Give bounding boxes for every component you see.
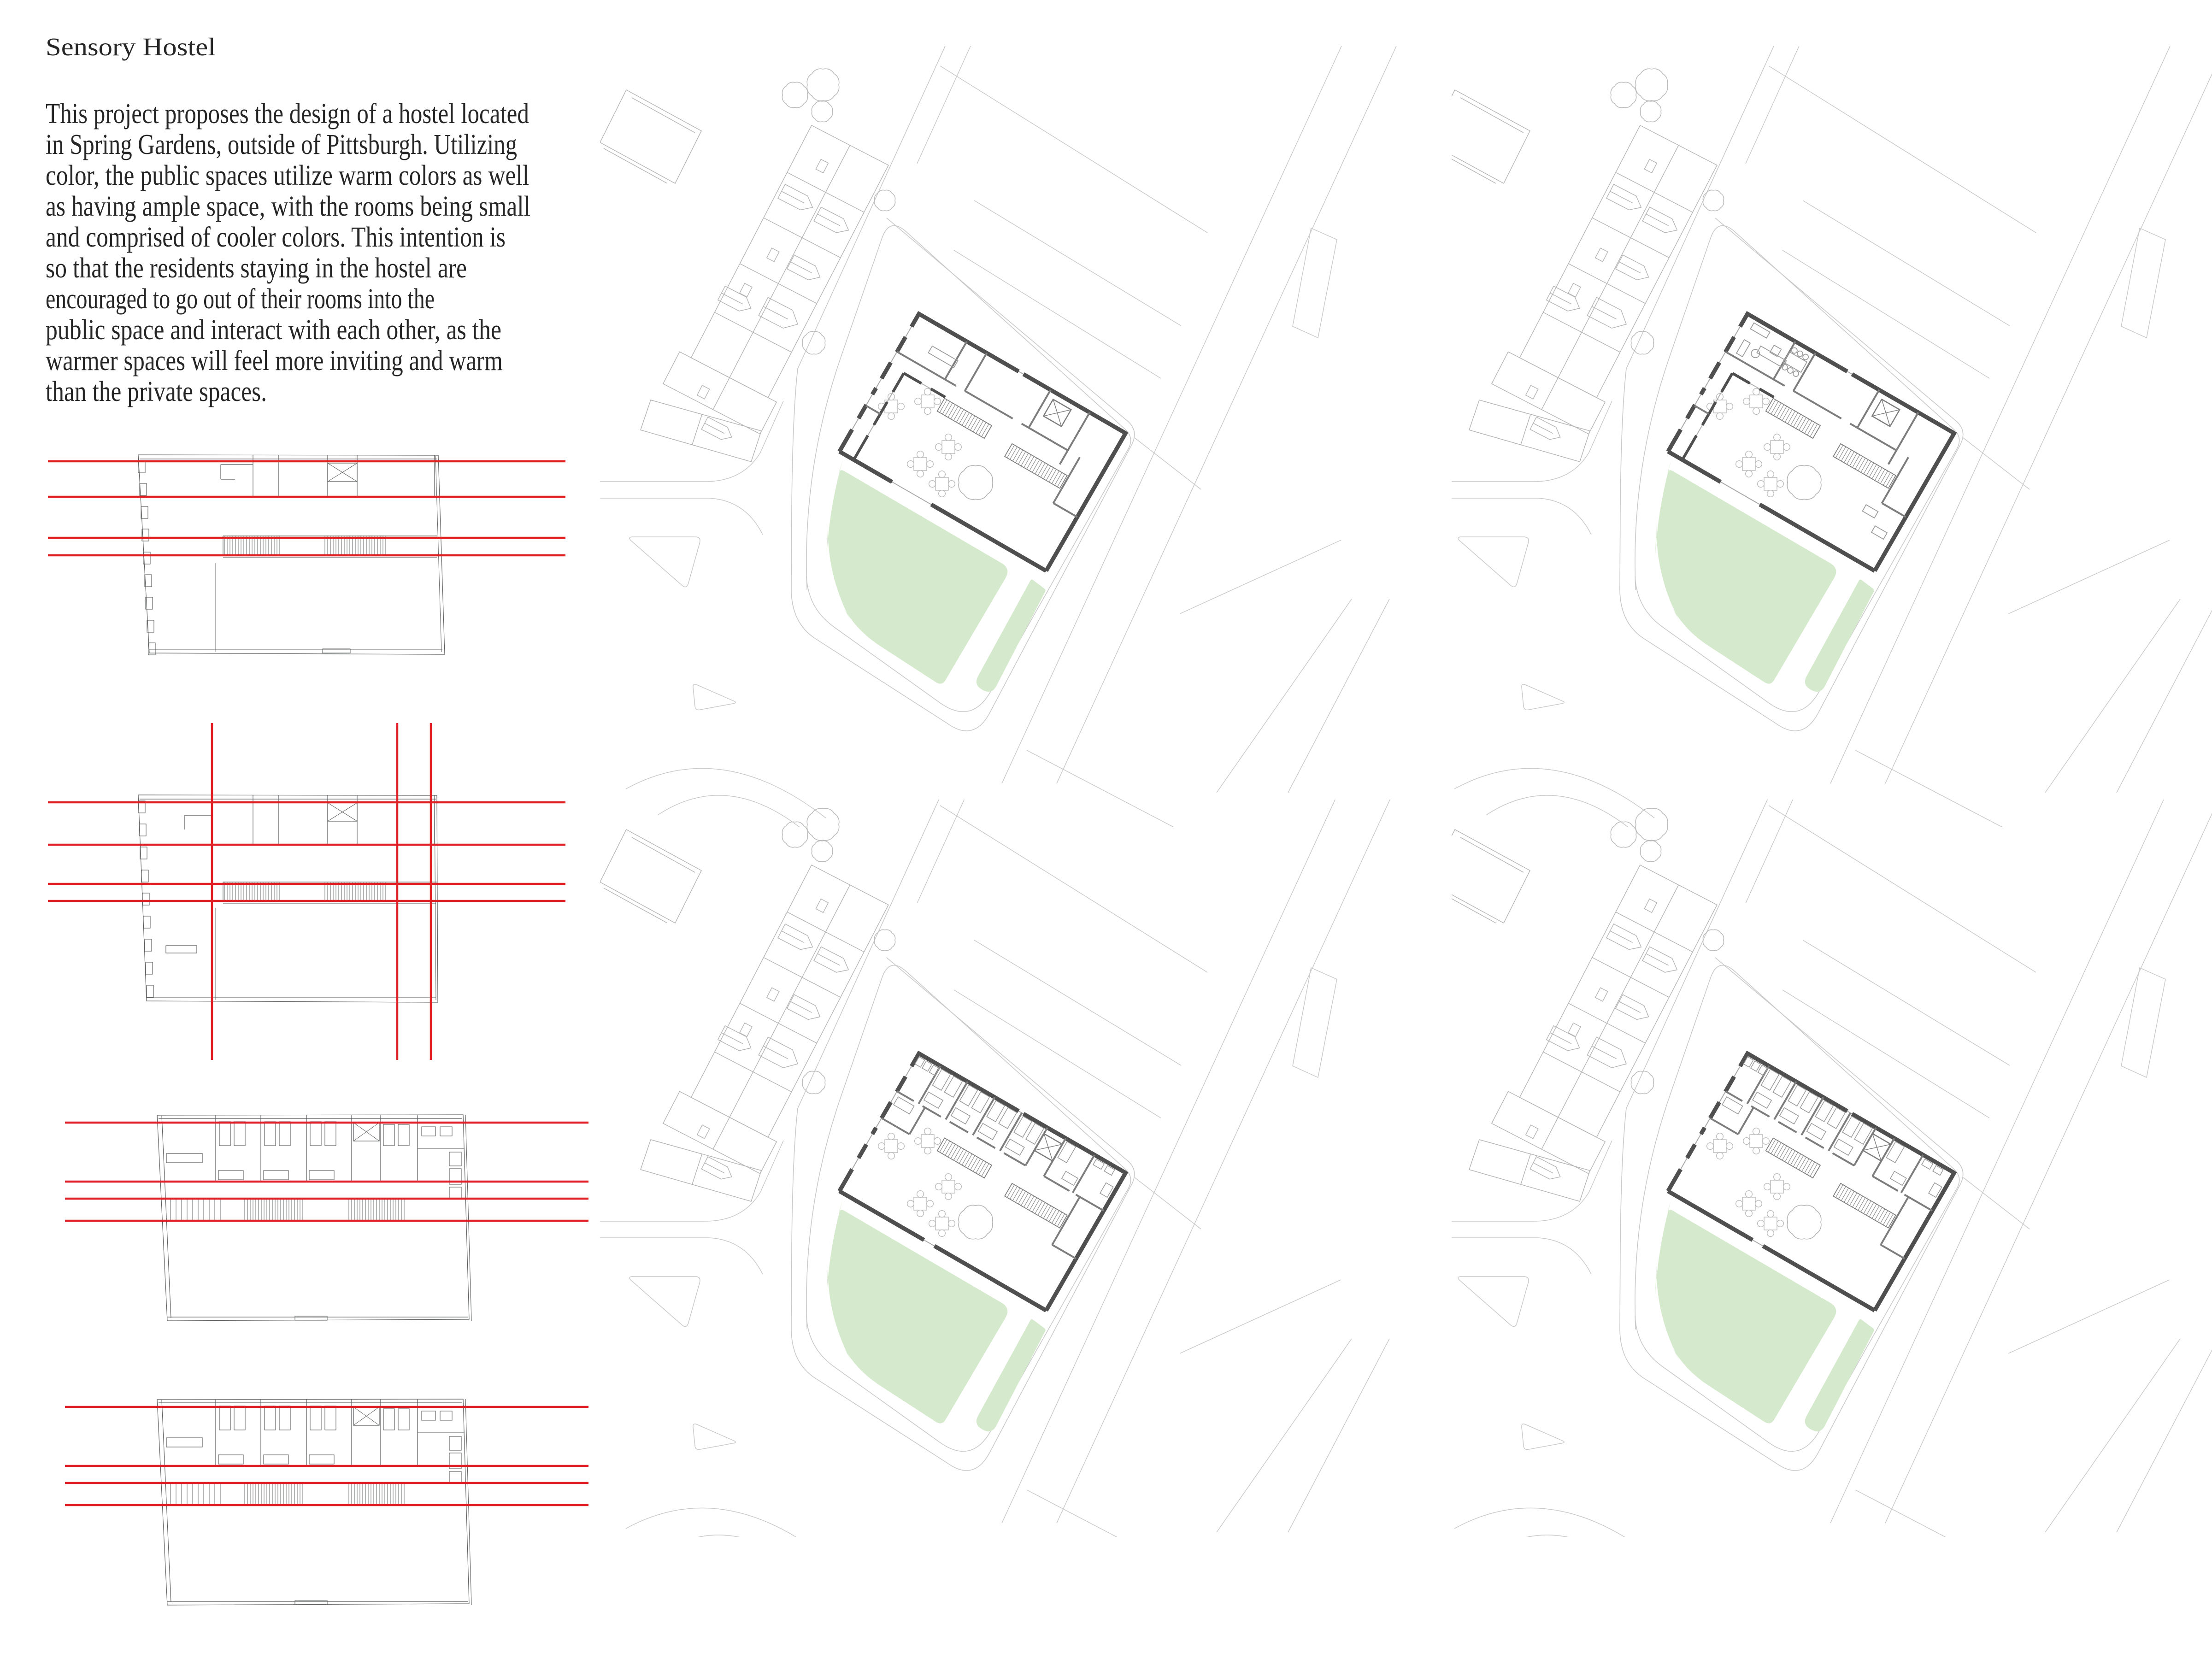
svg-text:than the private spaces.: than the private spaces.	[46, 376, 267, 407]
svg-text:as having ample space, with th: as having ample space, with the rooms be…	[46, 191, 530, 222]
svg-text:This project proposes the desi: This project proposes the design of a ho…	[46, 98, 529, 129]
svg-text:public space and interact with: public space and interact with each othe…	[46, 314, 501, 346]
svg-text:warmer spaces will feel more i: warmer spaces will feel more inviting an…	[46, 345, 503, 377]
svg-text:encouraged to go out of their: encouraged to go out of their rooms into…	[46, 283, 435, 315]
svg-text:in Spring Gardens, outside of: in Spring Gardens, outside of Pittsburgh…	[46, 129, 517, 160]
svg-text:and comprised of cooler colors: and comprised of cooler colors. This int…	[46, 222, 506, 253]
svg-text:Sensory Hostel: Sensory Hostel	[46, 33, 216, 61]
svg-text:color, the public spaces utili: color, the public spaces utilize warm co…	[46, 160, 529, 191]
svg-text:so that the residents staying: so that the residents staying in the hos…	[46, 253, 467, 284]
